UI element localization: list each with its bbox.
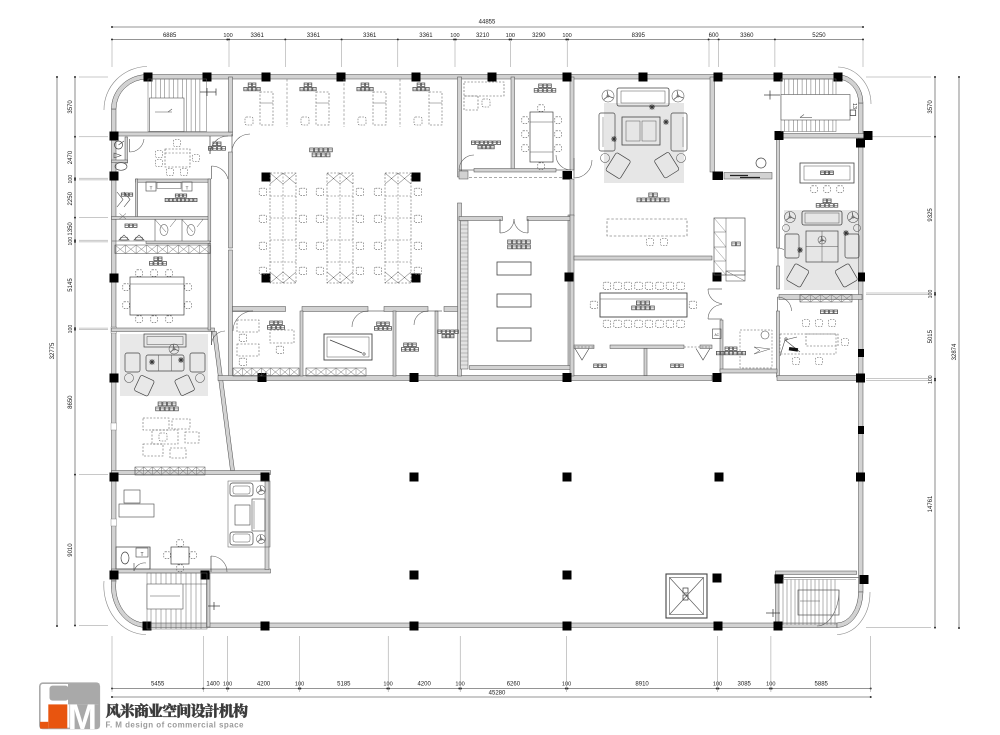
svg-text:5455: 5455 <box>151 682 165 688</box>
svg-text:5015: 5015 <box>928 329 934 343</box>
svg-text:8910: 8910 <box>635 682 649 688</box>
svg-text:5885: 5885 <box>815 682 829 688</box>
svg-text:3360: 3360 <box>740 33 754 39</box>
svg-text:AC: AC <box>714 333 719 337</box>
svg-text:3210: 3210 <box>476 33 490 39</box>
svg-text:3085: 3085 <box>738 682 752 688</box>
svg-text:T: T <box>140 552 143 558</box>
svg-text:5250: 5250 <box>812 33 826 39</box>
svg-text:2470: 2470 <box>68 150 74 164</box>
svg-text:13: 13 <box>851 103 857 109</box>
svg-text:8650: 8650 <box>68 395 74 409</box>
svg-text:100: 100 <box>450 33 459 39</box>
svg-text:5145: 5145 <box>68 278 74 292</box>
svg-text:32874: 32874 <box>952 343 958 360</box>
svg-text:9325: 9325 <box>928 208 934 222</box>
svg-text:T: T <box>186 186 189 191</box>
svg-text:100: 100 <box>928 290 934 299</box>
svg-text:100: 100 <box>68 325 74 334</box>
svg-text:100: 100 <box>68 175 74 184</box>
svg-text:6260: 6260 <box>507 682 521 688</box>
svg-text:3361: 3361 <box>250 33 264 39</box>
svg-text:45280: 45280 <box>489 691 506 697</box>
svg-text:14761: 14761 <box>928 495 934 512</box>
svg-text:9010: 9010 <box>68 543 74 557</box>
svg-text:100: 100 <box>68 237 74 246</box>
svg-text:3570: 3570 <box>68 100 74 114</box>
svg-text:100: 100 <box>562 33 571 39</box>
svg-text:2250: 2250 <box>68 191 74 205</box>
svg-text:8395: 8395 <box>632 33 646 39</box>
svg-text:3290: 3290 <box>532 33 546 39</box>
svg-text:F. M design of commercial spac: F. M design of commercial space <box>106 721 245 730</box>
svg-text:T: T <box>150 186 153 191</box>
svg-text:4200: 4200 <box>417 682 431 688</box>
svg-text:1400: 1400 <box>206 682 220 688</box>
svg-text:3570: 3570 <box>928 100 934 114</box>
svg-text:100: 100 <box>928 375 934 384</box>
svg-text:1350: 1350 <box>68 222 74 236</box>
svg-text:6885: 6885 <box>163 33 177 39</box>
svg-text:3361: 3361 <box>419 33 433 39</box>
svg-text:3361: 3361 <box>363 33 377 39</box>
svg-text:4200: 4200 <box>257 682 271 688</box>
svg-text:32775: 32775 <box>50 342 56 359</box>
svg-text:100: 100 <box>223 33 232 39</box>
svg-text:5185: 5185 <box>337 682 351 688</box>
svg-text:3361: 3361 <box>307 33 321 39</box>
svg-text:100: 100 <box>506 33 515 39</box>
svg-text:44855: 44855 <box>479 20 496 26</box>
svg-text:600: 600 <box>709 33 720 39</box>
svg-text:M: M <box>68 698 97 735</box>
